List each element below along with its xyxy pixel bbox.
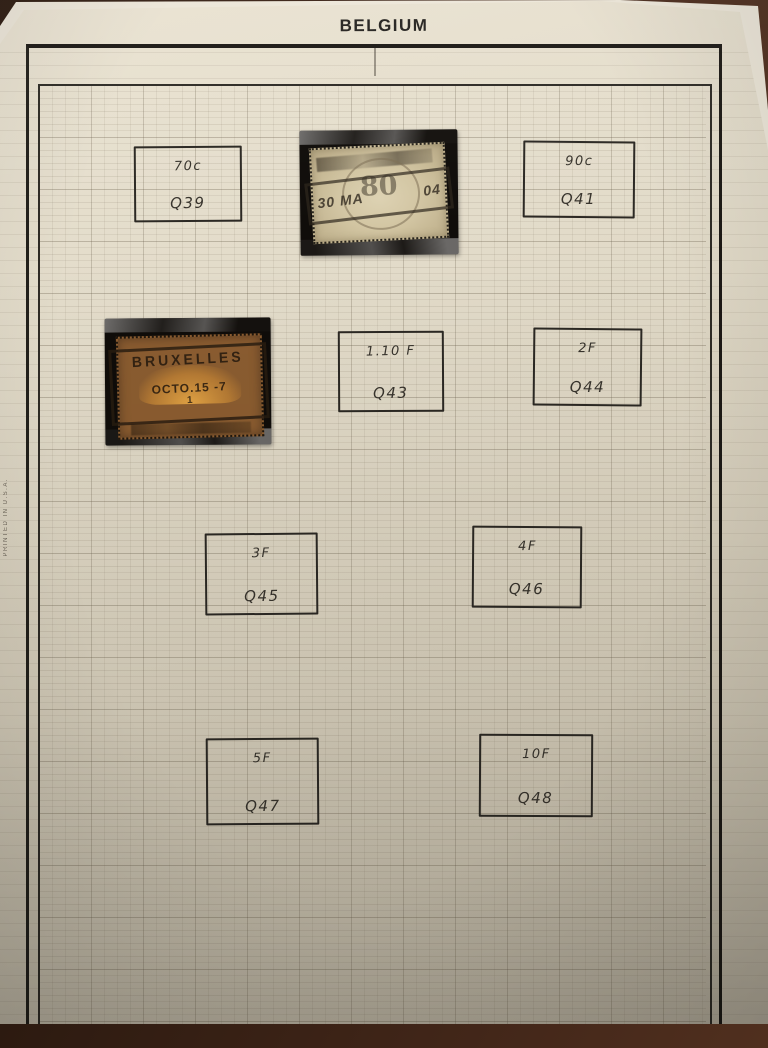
center-tick-mark [374,48,376,76]
value-label: 90c [565,154,593,169]
mount-gloss [105,317,271,332]
value-label: 10F [522,747,551,762]
catalog-label: Q48 [518,789,553,807]
postmark-smudge [131,422,250,436]
stamp-space-q47: 5F Q47 [206,738,320,826]
catalog-label: Q43 [373,384,409,402]
stamp-mount-1f: BRUXELLES OCTO.15 -7 1 [105,317,272,445]
catalog-label: Q47 [245,797,281,816]
value-label: 5F [253,751,272,766]
catalog-label: Q44 [570,378,605,396]
stamp-space-q43: 1.10 F Q43 [338,331,444,413]
value-label: 70c [174,159,203,175]
catalog-label: Q45 [244,587,280,606]
stamp-mount-80c: 80 30 MA 04 [299,129,458,256]
stamp-space-q45: 3F Q45 [205,533,319,616]
stamp-space-q48: 10F Q48 [479,734,593,818]
catalog-label: Q39 [170,194,206,213]
stamp-1f-orange: BRUXELLES OCTO.15 -7 1 [116,333,264,440]
printed-in-usa-note: PRINTED IN U.S.A. [3,478,9,557]
value-label: 2F [578,341,597,356]
postmark-date-left: 30 MA [317,190,365,211]
postmark-date-right: 04 [422,180,441,198]
stamp-space-q39: 70c Q39 [134,146,243,223]
stamp-space-q46: 4F Q46 [472,526,583,609]
stamp-space-q44: 2F Q44 [533,327,643,406]
catalog-label: Q41 [561,190,596,208]
stamp-space-q41: 90c Q41 [523,141,636,219]
page-title: BELGIUM [0,14,768,38]
stamp-80c: 80 30 MA 04 [309,142,450,245]
postmark-box: BRUXELLES OCTO.15 -7 1 [108,342,270,426]
value-label: 3F [252,546,271,561]
value-label: 1.10 F [366,343,416,359]
album-page: BELGIUM PRINTED IN U.S.A. 70c Q39 80 30 … [0,0,768,1024]
catalog-label: Q46 [509,580,544,598]
postmark-city: BRUXELLES [111,347,264,371]
value-label: 4F [518,539,537,554]
